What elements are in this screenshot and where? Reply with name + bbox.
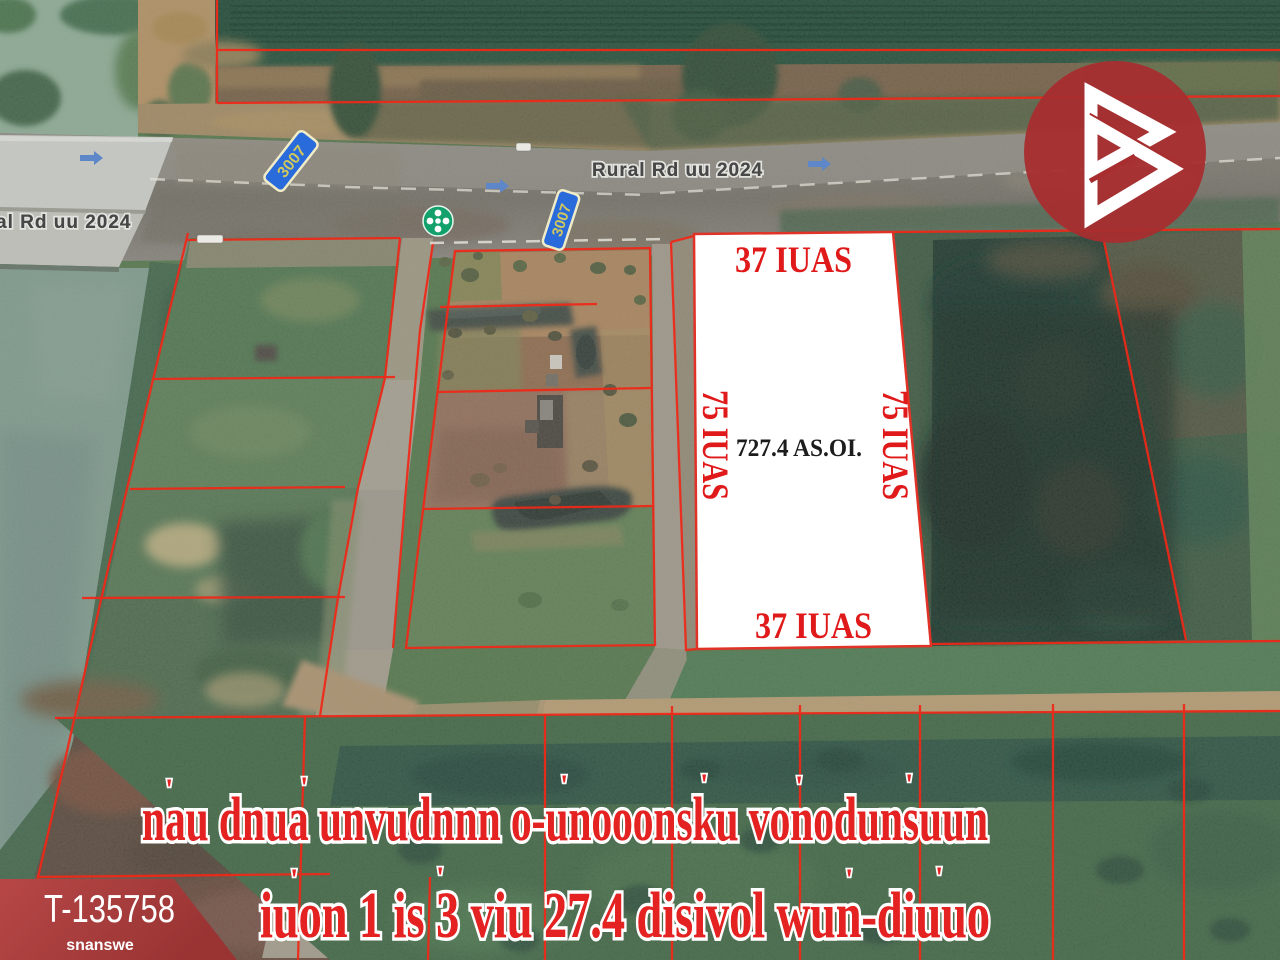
- svg-text:75 IUAS: 75 IUAS: [694, 390, 735, 500]
- svg-text:al Rd uu 2024: al Rd uu 2024: [0, 212, 132, 233]
- svg-text:': ': [290, 863, 298, 896]
- svg-text:': ': [905, 768, 913, 801]
- svg-text:727.4 AS.OI.: 727.4 AS.OI.: [736, 435, 862, 462]
- svg-text:': ': [436, 861, 444, 894]
- svg-text:': ': [300, 771, 308, 804]
- svg-text:T-135758: T-135758: [44, 888, 175, 931]
- svg-text:37 IUAS: 37 IUAS: [735, 240, 852, 281]
- svg-text:Rural Rd uu 2024: Rural Rd uu 2024: [592, 160, 763, 181]
- svg-text:': ': [935, 861, 943, 894]
- svg-text:37 IUAS: 37 IUAS: [755, 606, 872, 647]
- svg-text:snanswe: snanswe: [66, 937, 134, 954]
- svg-text:': ': [165, 773, 173, 806]
- svg-text:': ': [700, 768, 708, 801]
- svg-text:75 IUAS: 75 IUAS: [874, 390, 915, 500]
- svg-text:': ': [560, 769, 568, 802]
- svg-text:': ': [795, 770, 803, 803]
- svg-text:': ': [845, 863, 853, 896]
- svg-text:iuon 1 is 3 viu 27.4 disivol w: iuon 1 is 3 viu 27.4 disivol wun-diuuo: [260, 879, 990, 952]
